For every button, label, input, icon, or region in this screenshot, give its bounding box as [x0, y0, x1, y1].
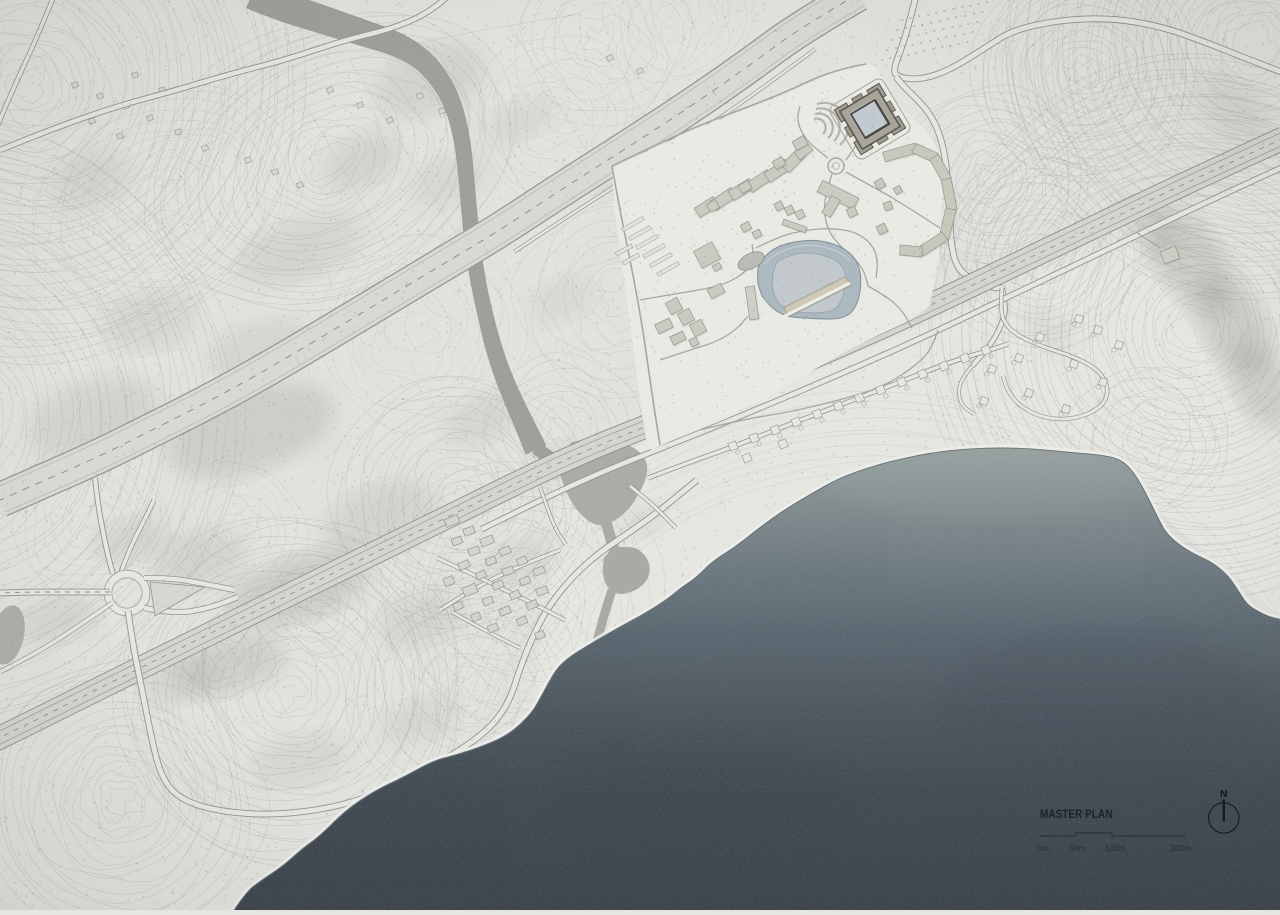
svg-text:MASTER PLAN: MASTER PLAN	[1040, 807, 1113, 821]
svg-text:N: N	[1220, 788, 1228, 800]
svg-text:200m: 200m	[1170, 843, 1191, 853]
svg-text:0m: 0m	[1037, 843, 1049, 853]
svg-text:100m: 100m	[1105, 843, 1126, 853]
svg-text:50m: 50m	[1069, 843, 1085, 853]
